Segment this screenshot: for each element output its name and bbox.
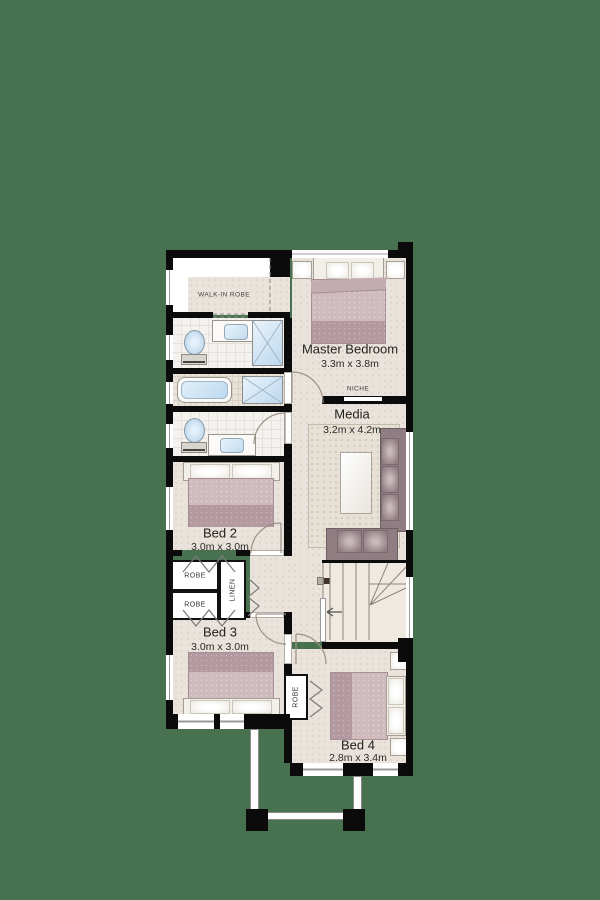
door-swing-icon bbox=[251, 372, 326, 664]
shower-glass-icon bbox=[243, 321, 282, 403]
bed4-dims: 2.8m x 3.4m bbox=[329, 752, 387, 764]
bed3-dims: 3.0m x 3.0m bbox=[191, 641, 249, 653]
robe-bed3-label: ROBE bbox=[184, 602, 205, 609]
walk-in-robe-label: WALK-IN ROBE bbox=[198, 292, 250, 299]
floor-plan: WALK-IN ROBE Master Bedroom 3.3m x 3.8m … bbox=[0, 0, 600, 900]
master-bedroom-dims: 3.3m x 3.8m bbox=[321, 358, 379, 370]
niche-label: NICHE bbox=[347, 386, 369, 393]
robe-bed4-label: ROBE bbox=[293, 686, 300, 707]
bed4-label: Bed 4 bbox=[341, 738, 375, 753]
bulkhead-dashed-line bbox=[213, 258, 270, 317]
bed2-label: Bed 2 bbox=[203, 526, 237, 541]
media-label: Media bbox=[334, 407, 369, 422]
master-bedroom-label: Master Bedroom bbox=[302, 342, 398, 357]
plan-line-overlay bbox=[0, 0, 600, 900]
linen-label: LINEN bbox=[230, 579, 237, 602]
bed3-label: Bed 3 bbox=[203, 625, 237, 640]
stair-arrow-icon bbox=[327, 608, 342, 616]
robe-bed2-label: ROBE bbox=[184, 573, 205, 580]
media-dims: 3.2m x 4.2m bbox=[323, 424, 381, 436]
stairs-icon bbox=[323, 563, 406, 640]
bed2-dims: 3.0m x 3.0m bbox=[191, 541, 249, 553]
